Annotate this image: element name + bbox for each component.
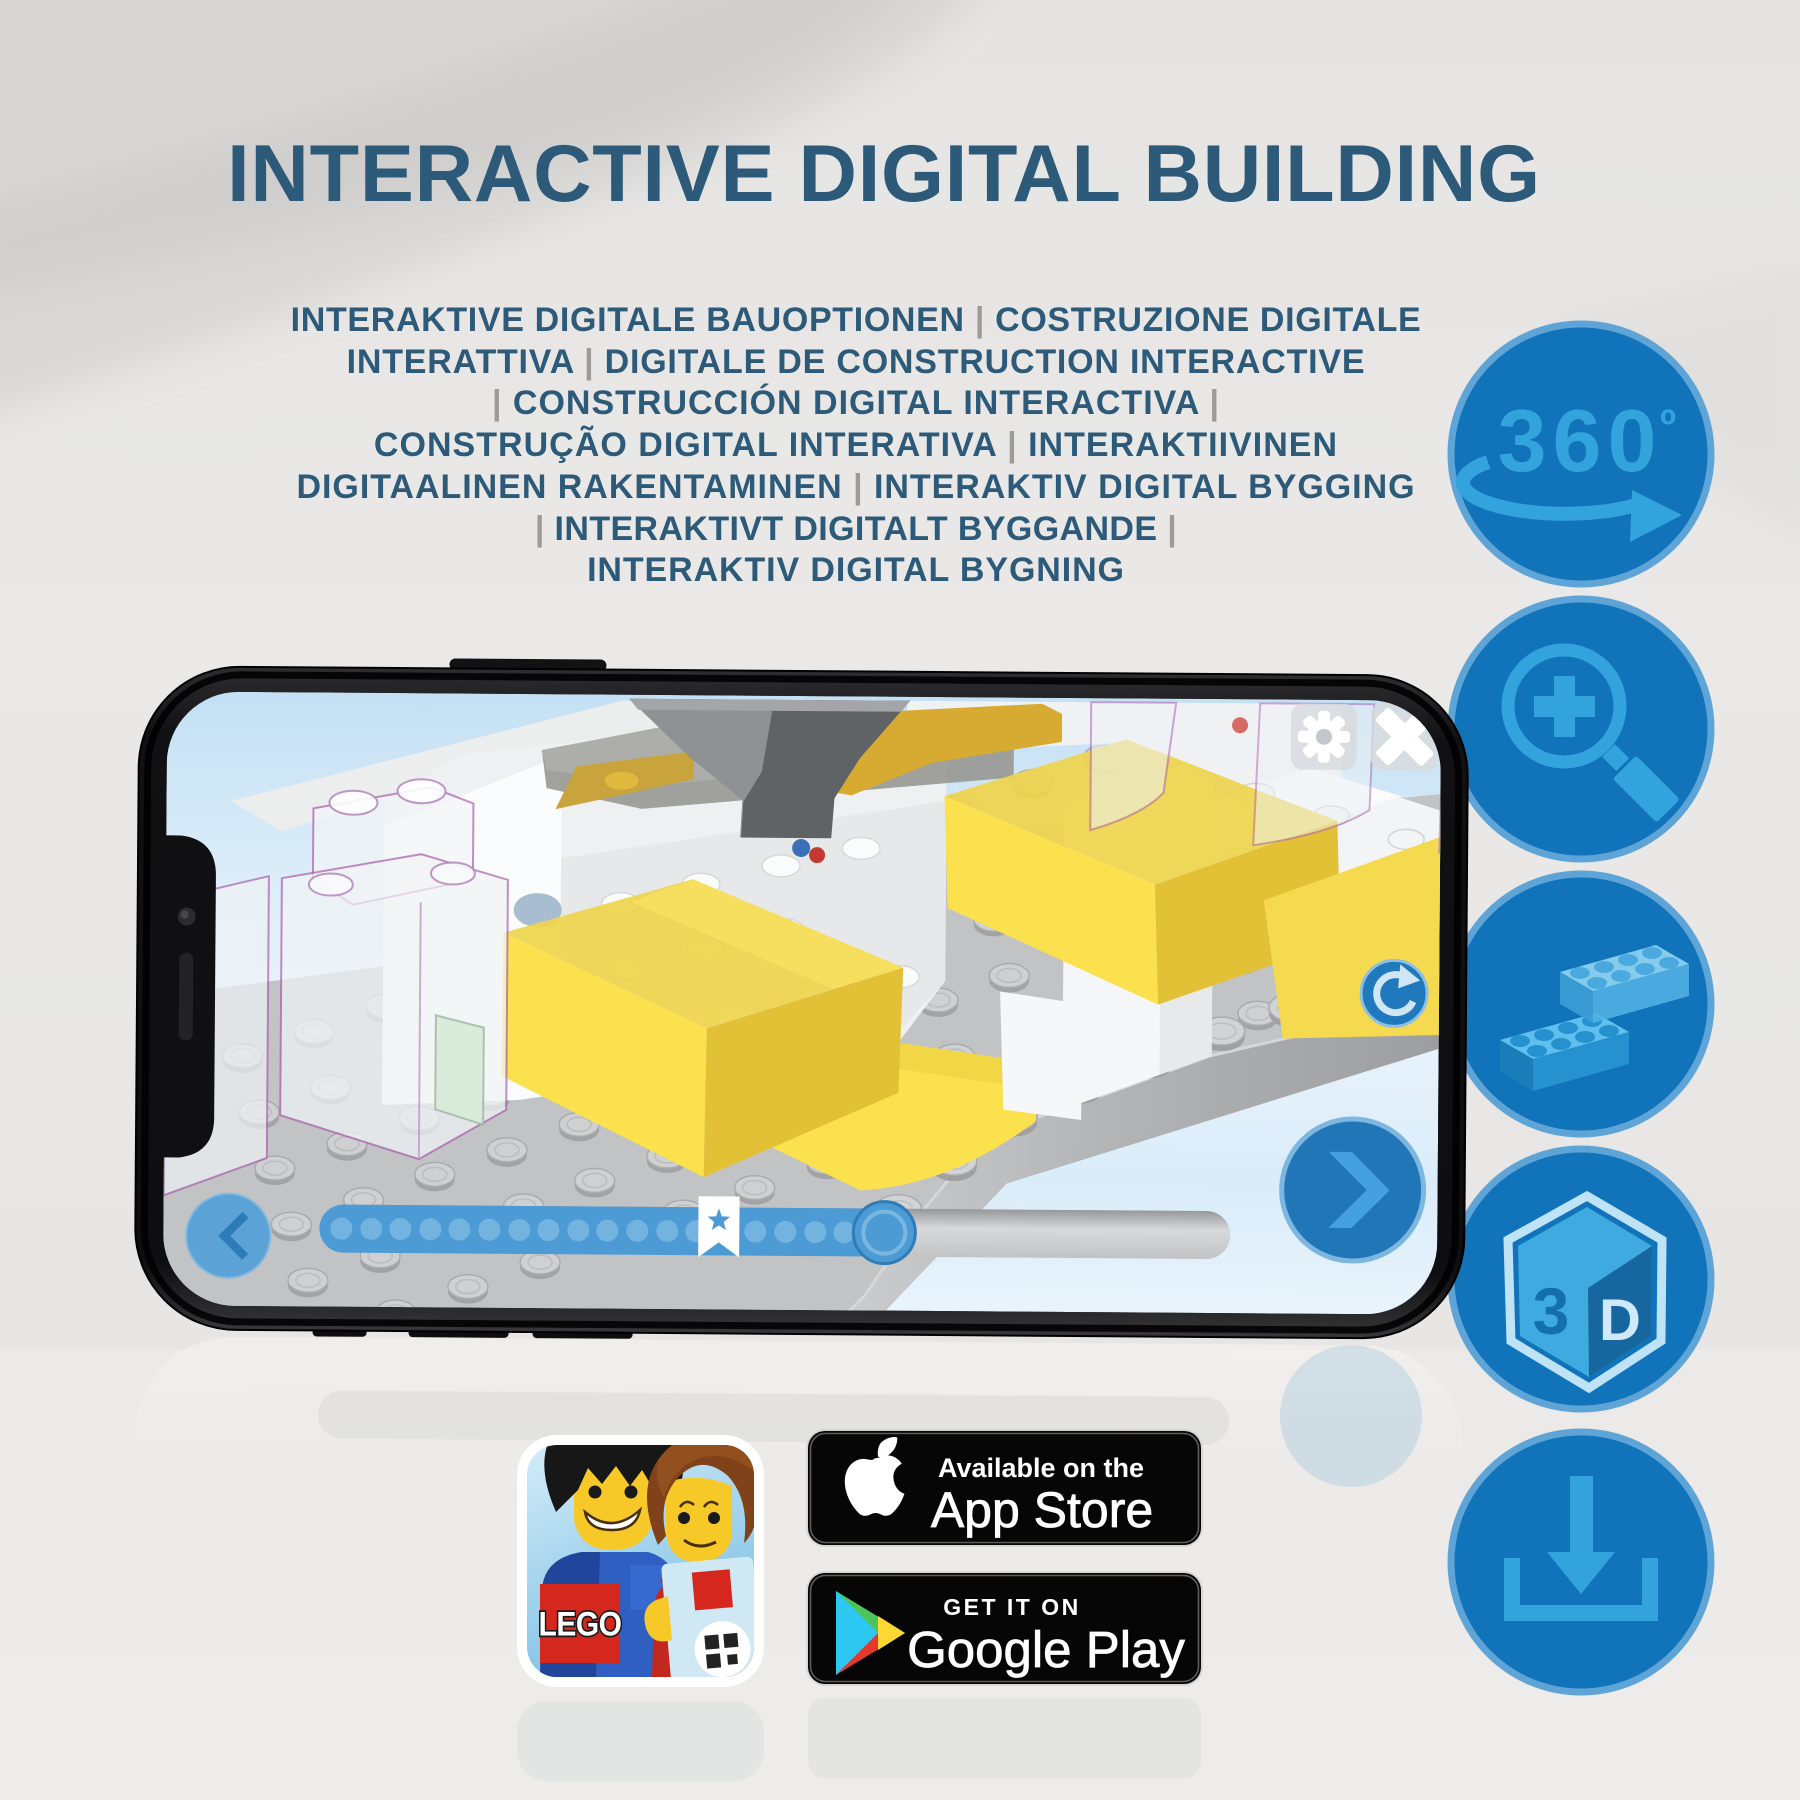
svg-text:| CONSTRUCCIÓN DIGITAL INTERAC: | CONSTRUCCIÓN DIGITAL INTERACTIVA | [492,384,1220,422]
svg-text:LEGO: LEGO [539,1604,622,1642]
svg-text:CONSTRUÇÃO DIGITAL INTERATIVA: CONSTRUÇÃO DIGITAL INTERATIVA | INTERAKT… [374,426,1338,464]
svg-text:3: 3 [1533,1274,1570,1348]
svg-text:App Store: App Store [931,1482,1153,1538]
svg-text:Available on the: Available on the [938,1453,1144,1483]
svg-text:INTERAKTIV DIGITAL BYGNING: INTERAKTIV DIGITAL BYGNING [587,551,1125,589]
svg-text:GET IT ON: GET IT ON [943,1594,1081,1620]
svg-text:INTERACTIVE DIGITAL BUILDING: INTERACTIVE DIGITAL BUILDING [227,129,1541,219]
svg-text:DIGITAALINEN RAKENTAMINEN | IN: DIGITAALINEN RAKENTAMINEN | INTERAKTIV D… [296,468,1415,506]
svg-text:INTERAKTIVE DIGITALE BAUOPTION: INTERAKTIVE DIGITALE BAUOPTIONEN | COSTR… [291,301,1422,339]
svg-text:Google Play: Google Play [907,1621,1185,1678]
svg-text:360: 360 [1498,391,1663,490]
svg-text:D: D [1599,1288,1641,1353]
svg-text:INTERATTIVA | DIGITALE DE CONS: INTERATTIVA | DIGITALE DE CONSTRUCTION I… [347,343,1366,381]
svg-text:º: º [1660,401,1676,450]
svg-text:| INTERAKTIVT DIGITALT BYGGAND: | INTERAKTIVT DIGITALT BYGGANDE | [535,510,1177,548]
